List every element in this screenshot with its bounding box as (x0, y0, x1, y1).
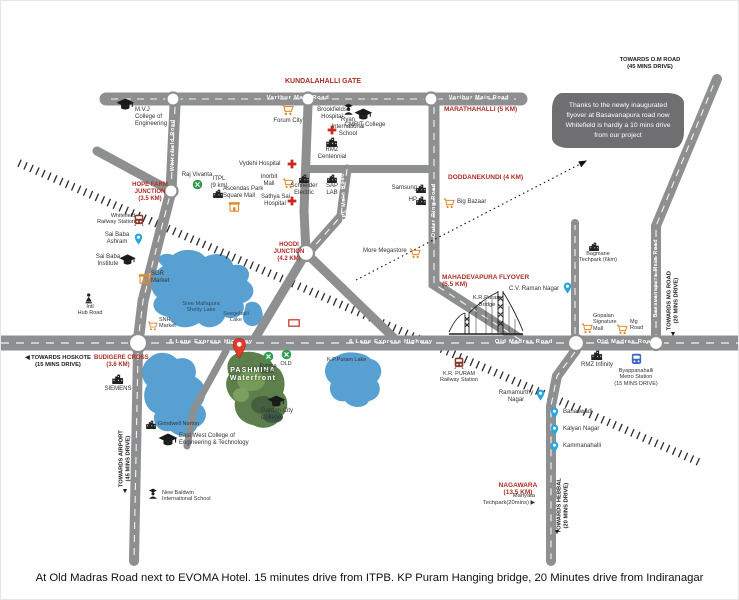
kr-puram-bridge-label-line: K.R.Puram (469, 295, 505, 302)
rmz-centennial-label: RMZCentennial (314, 147, 350, 161)
roads (1, 79, 739, 561)
towards-om-road-line: (45 MINS DRIVE) (605, 64, 695, 71)
old-marker-label: OLD (278, 361, 294, 367)
hope-farm-junction-line: HOPE FARM (131, 182, 169, 189)
shop-icon (228, 201, 241, 212)
hope-farm-junction-line: (3.5 KM) (131, 196, 169, 203)
kalyan-nagar-label: Kalyan Nagar (563, 426, 603, 433)
samsung-label: Samsung (389, 185, 417, 192)
kr-puram-bridge-label: K.R.PuramBridge (469, 295, 505, 308)
cv-raman-nagar-label: C.V. Raman Nagar (509, 286, 561, 293)
towards-hoskote: ◀ TOWARDS HOSKOTE(15 MINS DRIVE) (25, 355, 91, 368)
towards-mg-road: TOWARDS MG ROAD(20 MINS DRIVE) (666, 261, 679, 341)
bld-icon (326, 174, 338, 183)
samsung-label-line: Samsung (389, 185, 417, 192)
hub-road-label-line: Hub Road (75, 310, 105, 316)
sathya-sai-hospital-label-line: Sathya Sai (261, 194, 289, 201)
dot-icon (192, 179, 203, 190)
hope-farm-junction-line: JUNCTION (131, 189, 169, 196)
east-west-college-label: East West College ofEngineering & Techno… (179, 433, 251, 447)
hoodi-junction-line: (4.2 KM) (273, 256, 305, 263)
mahadevapura-flyover-line: MAHADEVAPURA FLYOVER (442, 274, 538, 281)
cart-icon (581, 323, 594, 334)
cart-icon (443, 198, 456, 209)
cmrit-college-label: CMRIT College (343, 122, 387, 129)
highway-label-1-line: 6 Lane Express Highway (151, 339, 271, 346)
bld-icon (590, 350, 603, 360)
cross-icon (287, 159, 297, 169)
evoma-hotel-label: EvomaHotel (257, 363, 279, 376)
redpin-icon (231, 337, 248, 359)
hp-label: HP (399, 197, 417, 204)
highway-label-2: 6 Lane Express Highway (331, 339, 451, 346)
sai-baba-ashram-label-line: Sai Baba (103, 232, 131, 239)
bld-icon (588, 242, 600, 251)
location-map-page: Thanks to the newly inaugurated flyover … (0, 0, 739, 600)
kr-puram-railway-station-label: K.R. PURAMRailway Station (437, 371, 481, 384)
sai-baba-institute-label-line: Sai Baba (93, 254, 123, 261)
grindwell-norton-label-line: Grindwell Norton (158, 421, 210, 427)
pin-icon (550, 407, 559, 419)
towards-airport-line: TOWARDS AIRPORT (118, 419, 125, 499)
garden-city-college-label: Garden CityCollege (261, 408, 299, 422)
sgr-market-label: SGRMarket (151, 271, 175, 285)
sathya-sai-hospital-label-line: Hospital (261, 201, 289, 208)
sgr-market-label-line: SGR (151, 271, 175, 278)
towards-mg-road-arrow: ▼ (665, 331, 681, 339)
bagmane-techpark-label: BagmaneTechpark (6km) (575, 251, 621, 264)
bld-icon (111, 374, 124, 384)
banaswadi-label: Banaswadi (563, 409, 599, 416)
forum-city-label-line: Forum City (268, 118, 308, 125)
old-madras-road-label-1-line: Old Madras Road (479, 339, 569, 346)
doddanekundi-line: DODDANEKUNDI (4 KM) (448, 174, 544, 181)
towards-airport-arrow-line: ▼ (117, 488, 133, 496)
pin-icon (134, 233, 143, 245)
vydehi-hospital-label: Vydehi Hospital (239, 161, 287, 168)
kundalahalli-gate: KUNDALAHALLI GATE (273, 78, 373, 86)
hoodi-junction-line: HOODI (273, 242, 305, 249)
towards-om-road-line: TOWARDS O.M ROAD (605, 57, 695, 64)
siemens-label: SIEMENS (102, 386, 134, 393)
map-graphics (1, 1, 739, 569)
old-madras-road-label-2: Old Madras Road (581, 339, 671, 346)
varthur-main-road-label-1: Varthur Main Road (253, 95, 343, 102)
byappanahalli-metro-label-line: (15 MINS DRIVE) (611, 381, 661, 387)
mg-road-mall-label: MgRoad (630, 319, 650, 332)
garden-city-college-label-line: College (261, 415, 299, 422)
sap-lab-label-line: SAP (323, 183, 341, 190)
cv-raman-nagar-label-line: C.V. Raman Nagar (509, 286, 561, 293)
budigere-cross-line: (3.6 KM) (94, 362, 142, 369)
highway-label-2-line: 6 Lane Express Highway (331, 339, 451, 346)
kp-puram-lake-label-line: K.P.Puram Lake (327, 357, 379, 363)
mvj-college-label-line: College of (135, 114, 179, 121)
brookfields-hospital-label-line: Hospital (313, 114, 351, 121)
ramamurthy-nagar-label: RamamurthyNagar (497, 390, 535, 404)
hp-label-line: HP (399, 197, 417, 204)
more-megastore-label-line: More Megastore (363, 248, 411, 255)
towards-mg-road-line: TOWARDS MG ROAD (666, 261, 673, 341)
bld-icon (298, 174, 310, 183)
bld-icon (145, 420, 157, 429)
banaswadi-label-line: Banaswadi (563, 409, 599, 416)
dot-icon (263, 351, 274, 362)
project-name-line: Waterfront (225, 375, 281, 383)
flyover-callout: Thanks to the newly inaugurated flyover … (552, 93, 684, 148)
towards-hebbal-arrow-line: ▼ (549, 529, 565, 537)
sai-baba-ashram-label-line: Ashram (103, 239, 131, 246)
cap-icon (158, 433, 178, 447)
cart-icon (147, 321, 158, 331)
whitefield-railway-station-label-line: Railway Station (93, 219, 135, 225)
big-bazaar-label-line: Big Bazaar (457, 199, 493, 206)
whitefield-railway-station-label: WhitefieldRailway Station (93, 213, 135, 226)
snr-market-label: SNRMarket (159, 317, 183, 330)
vydehi-hospital-label-line: Vydehi Hospital (239, 161, 287, 168)
cap-icon (354, 108, 373, 121)
byappanahalli-metro-label: ByappanahalliMetro Station(15 MINS DRIVE… (611, 368, 661, 387)
location-map: Thanks to the newly inaugurated flyover … (1, 1, 739, 569)
garden-city-college-label-line: Garden City (261, 408, 299, 415)
cmrit-college-label-line: CMRIT College (343, 122, 387, 129)
basavanapura-road-label-line: Basavanapura Main Road (654, 232, 660, 324)
shop-icon (138, 273, 151, 284)
hoodi-junction-line: JUNCTION (273, 249, 305, 256)
kalyan-nagar-label-line: Kalyan Nagar (563, 426, 603, 433)
varthur-main-road-label-2-line: Varthur Main Road (437, 95, 521, 101)
nagawara-line: NAGAWARA (497, 482, 539, 489)
hoodi-junction: HOODIJUNCTION(4.2 KM) (273, 242, 305, 263)
sap-lab-label: SAPLAB (323, 183, 341, 197)
more-megastore-label: More Megastore (363, 248, 411, 255)
hope-farm-junction: HOPE FARMJUNCTION(3.5 KM) (131, 182, 169, 203)
cap-icon (116, 98, 135, 111)
towards-airport-arrow: ▼ (117, 488, 133, 496)
sai-baba-ashram-label: Sai BabaAshram (103, 232, 131, 246)
varthur-main-road-label-2: Varthur Main Road (437, 95, 521, 101)
old-madras-road-label-2-line: Old Madras Road (581, 339, 671, 346)
marathahalli-line: MARATHAHALLI (5 KM) (444, 106, 536, 113)
ramamurthy-nagar-label-line: Nagar (497, 397, 535, 404)
kundalahalli-gate-line: KUNDALAHALLI GATE (273, 78, 373, 86)
outer-ring-road-label-line: Outer Ring Road (431, 177, 437, 243)
mvj-college-label: M.V.JCollege ofEngineering (135, 107, 179, 128)
towards-hoskote-line: (15 MINS DRIVE) (25, 362, 91, 369)
map-caption: At Old Madras Road next to EVOMA Hotel. … (1, 572, 738, 584)
doddanekundi: DODDANEKUNDI (4 KM) (448, 174, 544, 181)
snr-market-label-line: Market (159, 323, 183, 329)
pin-icon (550, 441, 559, 453)
schneider-electric-label: SchneiderElectric (290, 183, 318, 197)
itpl-label-line: ITPL (206, 176, 232, 183)
mg-road-mall-label-line: Road (630, 325, 650, 331)
towards-hebbal-arrow: ▼ (549, 529, 565, 537)
cap-icon (267, 395, 286, 408)
forum-city-label: Forum City (268, 118, 308, 125)
cross-icon (327, 125, 337, 135)
seegehalli-lake-label-line: Lake (221, 317, 251, 323)
person-icon (84, 293, 93, 304)
towards-hoskote-line: ◀ TOWARDS HOSKOTE (25, 355, 91, 362)
new-baldwin-school-label: New BaldwinInternational School (162, 490, 224, 503)
new-baldwin-school-label-line: International School (162, 496, 224, 502)
marathahalli: MARATHAHALLI (5 KM) (444, 106, 536, 113)
inorbit-mall-label-line: Inorbit (256, 174, 282, 181)
kammanahalli-label-line: Kammanahalli (563, 443, 605, 450)
big-bazaar-label: Big Bazaar (457, 199, 493, 206)
old-marker-label-line: OLD (278, 361, 294, 367)
old-madras-road-label-1: Old Madras Road (479, 339, 569, 346)
budigere-cross: BUDIGERE CROSS(3.6 KM) (94, 355, 142, 369)
ascendas-park-square-mall-label-line: Ascendas Park (223, 186, 267, 193)
ramamurthy-nagar-label-line: Ramamurthy (497, 390, 535, 397)
train-icon (453, 357, 465, 369)
grindwell-norton-label: Grindwell Norton (158, 421, 210, 427)
outer-ring-road-label: Outer Ring Road (431, 177, 437, 243)
lake-label-big-line: Shetty Lake (177, 307, 225, 313)
pin-icon (536, 389, 545, 401)
towards-mg-road-arrow-line: ▼ (665, 331, 681, 339)
schneider-electric-label-line: Electric (290, 190, 318, 197)
sai-baba-institute-label-line: Institute (93, 261, 123, 268)
towards-airport: TOWARDS AIRPORT(45 MINS DRIVE) (118, 419, 131, 499)
kr-puram-railway-station-label-line: Railway Station (437, 377, 481, 383)
school-icon (147, 488, 159, 500)
kp-puram-lake-label: K.P.Puram Lake (327, 357, 379, 363)
brookfields-hospital-label: BrookfieldsHospital (313, 107, 351, 121)
mvj-college-label-line: Engineering (135, 121, 179, 128)
redbox-icon (288, 319, 300, 327)
brookfields-hospital-label-line: Brookfields (313, 107, 351, 114)
rmz-centennial-label-line: RMZ (314, 147, 350, 154)
seegehalli-lake-label: SeegehalliLake (221, 311, 251, 324)
manyata-techpark-line: Techpark(20mins) ▶ (459, 500, 535, 507)
evoma-hotel-label-line: Hotel (257, 369, 279, 375)
sap-lab-label-line: LAB (323, 190, 341, 197)
cart-icon (281, 104, 295, 116)
cart-icon (616, 324, 629, 335)
basavanapura-road-label: Basavanapura Main Road (654, 232, 660, 324)
east-west-college-label-line: East West College of (179, 433, 251, 440)
east-west-college-label-line: Engineering & Technology (179, 440, 251, 447)
highway-label-1: 6 Lane Express Highway (151, 339, 271, 346)
bld-icon (325, 137, 338, 147)
kr-puram-bridge-label-line: Bridge (469, 302, 505, 309)
metro-icon (630, 353, 643, 366)
rmz-centennial-label-line: Centennial (314, 154, 350, 161)
lake-label-big: Sree MallapuraShetty Lake (177, 301, 225, 314)
towards-om-road: TOWARDS O.M ROAD(45 MINS DRIVE) (605, 57, 695, 70)
towards-airport-line: (45 MINS DRIVE) (125, 419, 132, 499)
schneider-electric-label-line: Schneider (290, 183, 318, 190)
budigere-cross-line: BUDIGERE CROSS (94, 355, 142, 362)
pin-icon (563, 282, 572, 294)
siemens-label-line: SIEMENS (102, 386, 134, 393)
varthur-main-road-label-1-line: Varthur Main Road (253, 95, 343, 102)
sai-baba-institute-label: Sai BabaInstitute (93, 254, 123, 268)
manyata-techpark: ManyataTechpark(20mins) ▶ (459, 493, 535, 506)
sgr-market-label-line: Market (151, 278, 175, 285)
pin-icon (550, 424, 559, 436)
towards-mg-road-line: (20 MINS DRIVE) (673, 261, 680, 341)
kammanahalli-label: Kammanahalli (563, 443, 605, 450)
manyata-techpark-line: Manyata (459, 493, 535, 500)
sathya-sai-hospital-label: Sathya SaiHospital (261, 194, 289, 208)
bagmane-techpark-label-line: Techpark (6km) (575, 257, 621, 263)
dot-icon (281, 349, 292, 360)
hub-road-label: IntlHub Road (75, 304, 105, 317)
mvj-college-label-line: M.V.J (135, 107, 179, 114)
